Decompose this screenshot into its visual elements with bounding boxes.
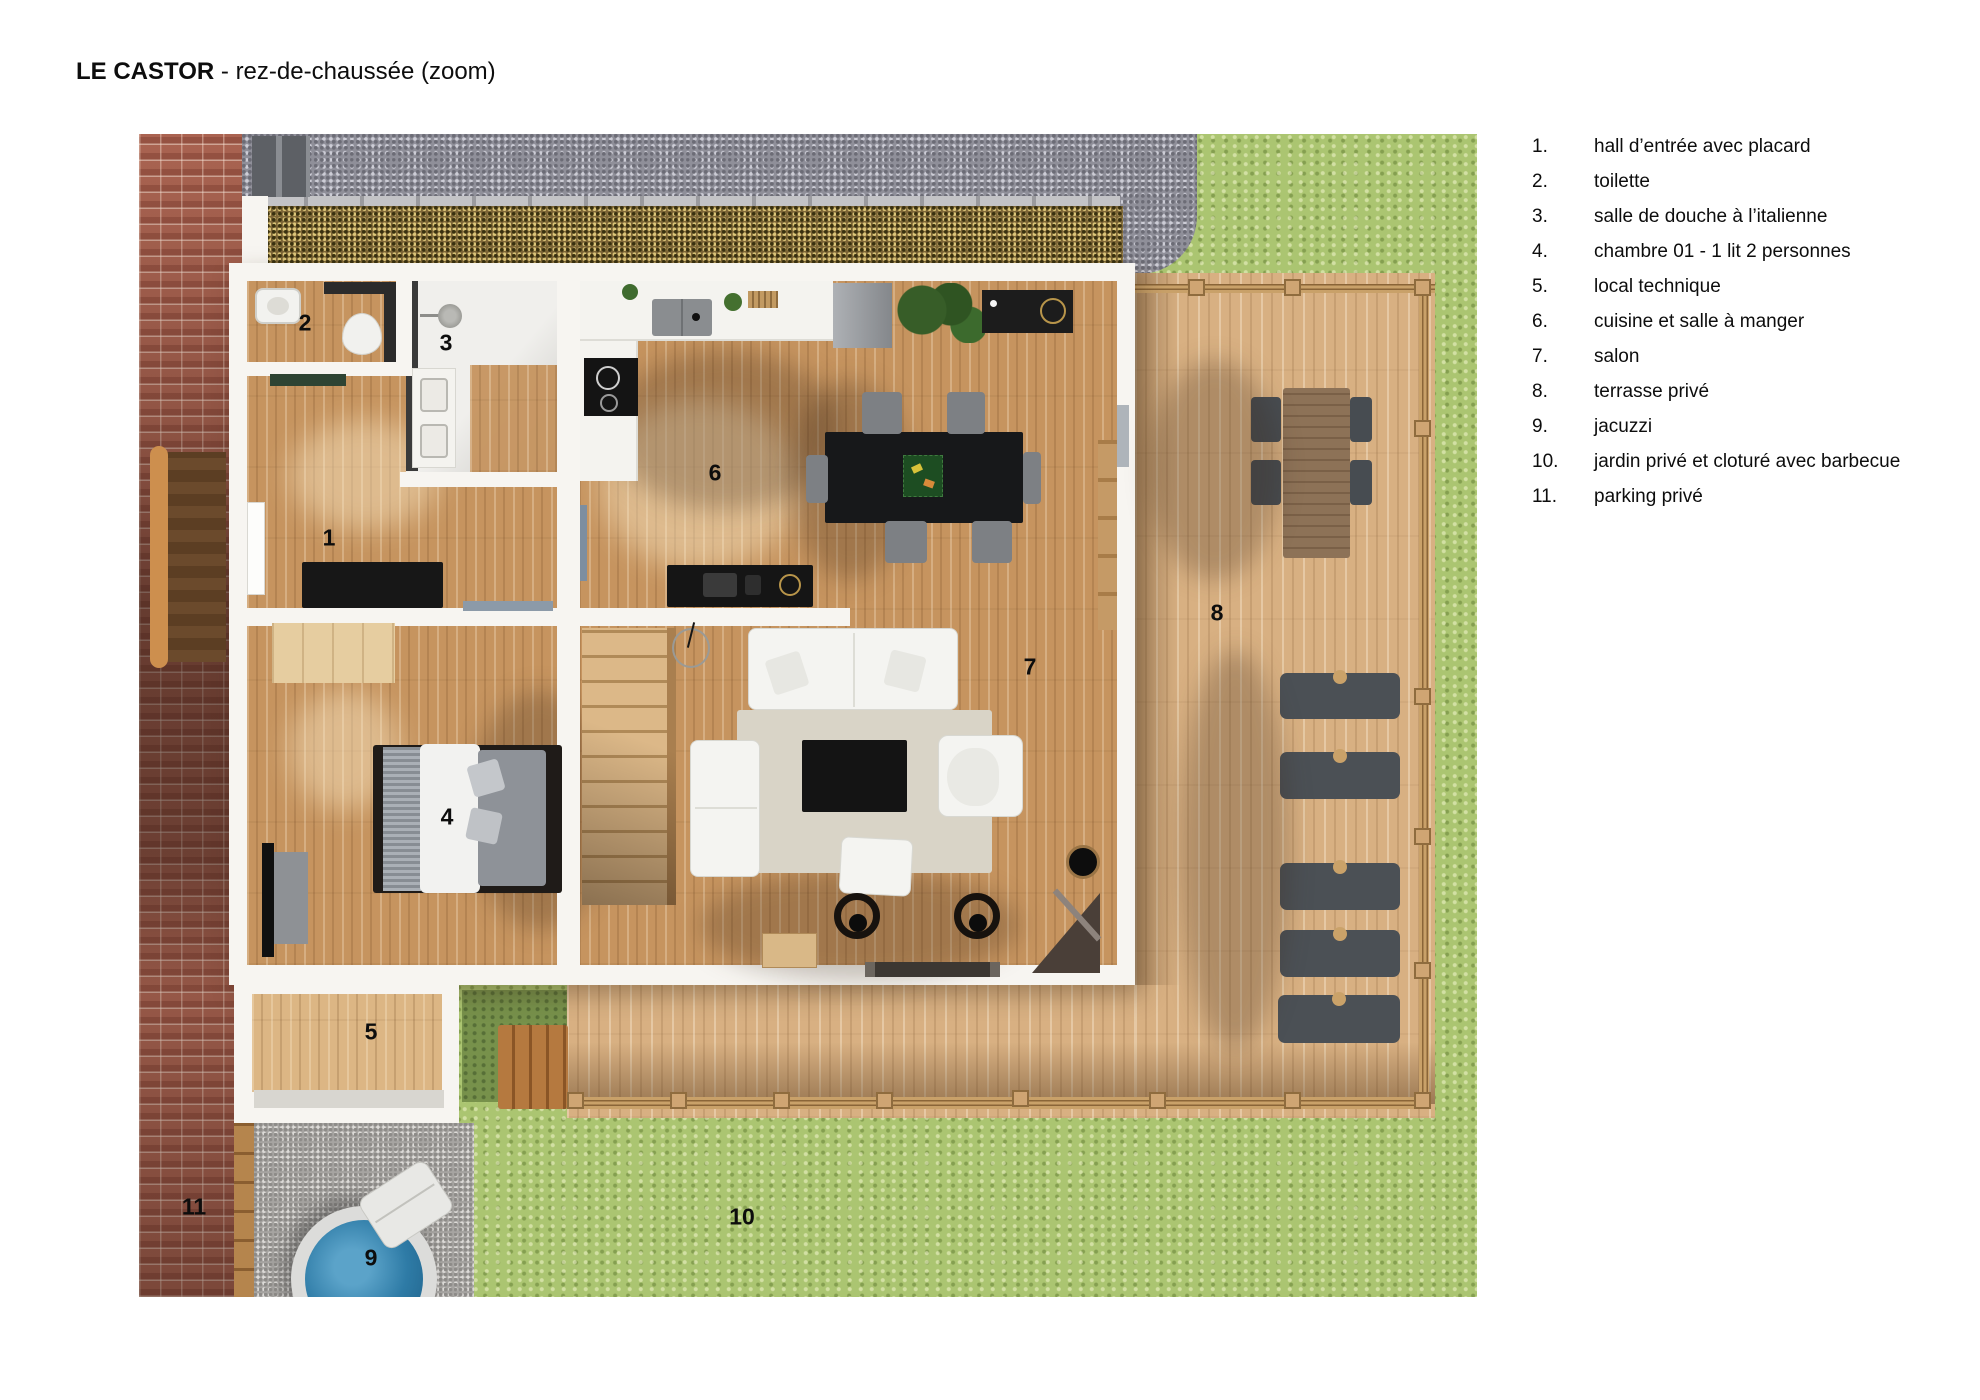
outdoor-chair (1350, 397, 1372, 442)
legend-item: 3.salle de douche à l’italienne (1532, 206, 1962, 241)
railing-post (1414, 420, 1431, 437)
legend-item: 5.local technique (1532, 276, 1962, 311)
room-marker-terrasse: 8 (1211, 602, 1224, 625)
hanging-chair (834, 893, 880, 939)
curb-return (242, 196, 268, 264)
dining-chair (806, 455, 828, 503)
page-title-rest: - rez-de-chaussée (zoom) (214, 58, 495, 85)
legend-item: 8.terrasse privé (1532, 381, 1962, 416)
washbasin (255, 288, 301, 324)
deck-edge-shadow (567, 1042, 1435, 1104)
legend-item-label: terrasse privé (1594, 381, 1709, 416)
dining-chair (972, 521, 1012, 563)
railing-post (1414, 688, 1431, 705)
page-title: LE CASTOR - rez-de-chaussée (zoom) (76, 58, 496, 86)
wood-platform (162, 452, 226, 662)
doormat (865, 962, 1000, 977)
railing-post (1414, 1092, 1431, 1109)
ottoman (839, 836, 914, 897)
page-title-brand: LE CASTOR (76, 58, 214, 85)
railing-post (1149, 1092, 1166, 1109)
legend-item-label: chambre 01 - 1 lit 2 personnes (1594, 241, 1851, 276)
room-marker-parking: 11 (182, 1196, 206, 1219)
side-table (762, 933, 817, 968)
legend-item-label: jacuzzi (1594, 416, 1652, 451)
legend-item: 7.salon (1532, 346, 1962, 381)
entrance-door (247, 502, 265, 595)
legend-item-number: 10. (1532, 451, 1594, 486)
legend-item-number: 2. (1532, 171, 1594, 206)
tv-stand (274, 852, 308, 944)
legend-item-label: toilette (1594, 171, 1650, 206)
legend-item-number: 5. (1532, 276, 1594, 311)
legend-item-label: salle de douche à l’italienne (1594, 206, 1827, 241)
corridor-mat (463, 601, 553, 611)
hanging-chair (954, 893, 1000, 939)
toilet-wall-accent (384, 282, 396, 362)
legend-item: 4.chambre 01 - 1 lit 2 personnes (1532, 241, 1962, 276)
legend-item: 9.jacuzzi (1532, 416, 1962, 451)
legend-item: 10.jardin privé et cloturé avec barbecue (1532, 451, 1962, 486)
legend-item: 6.cuisine et salle à manger (1532, 311, 1962, 346)
round-decor (672, 628, 710, 668)
room-marker-toilette: 2 (299, 312, 312, 335)
kitchen-sink (652, 299, 712, 336)
radiator (580, 505, 587, 581)
entry-steps (252, 136, 310, 197)
toilet (342, 313, 382, 355)
room-marker-technique: 5 (365, 1021, 378, 1044)
bed-runner (383, 747, 421, 891)
garden-steps (498, 1025, 568, 1109)
interior-wall (400, 472, 580, 487)
cooktop (584, 358, 638, 416)
legend-item: 11.parking privé (1532, 486, 1962, 521)
railing-post (1284, 1092, 1301, 1109)
table-centerpiece (903, 455, 943, 497)
wood-strip (234, 1123, 254, 1297)
outdoor-dining-table (1283, 388, 1350, 558)
legend-item-number: 7. (1532, 346, 1594, 381)
room-marker-chambre: 4 (441, 806, 454, 829)
legend-item-number: 9. (1532, 416, 1594, 451)
railing-post (670, 1092, 687, 1109)
room-marker-jacuzzi: 9 (365, 1247, 378, 1270)
hedge-gravel-band (266, 206, 1123, 268)
sun-lounger (1278, 995, 1400, 1043)
legend-item: 2.toilette (1532, 171, 1962, 206)
outdoor-chair (1251, 397, 1281, 442)
legend-item-number: 1. (1532, 136, 1594, 171)
technical-room-floor (252, 994, 442, 1092)
wardrobe (272, 623, 395, 683)
dining-chair (1023, 452, 1041, 504)
shower-head (438, 304, 462, 328)
staircase-shadow (582, 628, 676, 905)
fridge (833, 283, 892, 348)
sun-lounger (1280, 752, 1400, 799)
shower-room-wood-part (470, 365, 557, 472)
outdoor-chair (1350, 460, 1372, 505)
railing-post (1188, 279, 1205, 296)
spice-rack (748, 291, 778, 308)
legend: 1.hall d’entrée avec placard 2.toilette … (1532, 136, 1962, 521)
jacuzzi-pad (254, 1123, 474, 1297)
legend-item-label: cuisine et salle à manger (1594, 311, 1804, 346)
coffee-table (802, 740, 907, 812)
brick-shadow-overlay (139, 134, 242, 1297)
tv-screen (262, 843, 274, 957)
sun-lounger (1280, 930, 1400, 977)
room-marker-cuisine: 6 (709, 462, 722, 485)
armchair (938, 735, 1023, 817)
technical-room-threshold (254, 1090, 444, 1108)
legend-item-label: parking privé (1594, 486, 1703, 521)
kitchen-island (667, 565, 813, 607)
railing-post (1414, 962, 1431, 979)
dining-chair (862, 392, 902, 434)
hall-sideboard (302, 562, 443, 608)
vanity-sink (420, 378, 448, 412)
dining-chair (947, 392, 985, 434)
wood-platform-rail (150, 446, 168, 668)
wall-sideboard (1098, 440, 1117, 630)
dining-chair (885, 521, 927, 563)
legend-item-number: 8. (1532, 381, 1594, 416)
plant-small (622, 284, 638, 300)
room-marker-jardin: 10 (729, 1206, 755, 1229)
railing-post (1414, 828, 1431, 845)
vanity-sink (420, 424, 448, 458)
room-marker-salon: 7 (1024, 656, 1037, 679)
page: { "title": { "brand": "LE CASTOR", "rest… (0, 0, 1980, 1400)
sun-lounger (1280, 673, 1400, 719)
legend-item-number: 6. (1532, 311, 1594, 346)
legend-item-label: hall d’entrée avec placard (1594, 136, 1811, 171)
kitchen-counter-black (982, 290, 1073, 333)
bed-pillow (465, 807, 503, 845)
hall-doormat (270, 374, 346, 386)
barbecue (1066, 845, 1100, 879)
railing-post (1012, 1090, 1029, 1107)
outdoor-chair (1251, 460, 1281, 505)
legend-item-label: jardin privé et cloturé avec barbecue (1594, 451, 1900, 486)
railing-post (876, 1092, 893, 1109)
legend-item: 1.hall d’entrée avec placard (1532, 136, 1962, 171)
legend-item-label: salon (1594, 346, 1639, 381)
legend-item-number: 4. (1532, 241, 1594, 276)
legend-item-number: 3. (1532, 206, 1594, 241)
plant-large (895, 283, 985, 343)
room-marker-hall: 1 (323, 527, 336, 550)
loveseat (690, 740, 760, 877)
plant-small (724, 293, 742, 311)
sofa (748, 628, 958, 710)
legend-item-label: local technique (1594, 276, 1721, 311)
legend-item-number: 11. (1532, 486, 1594, 521)
window (1117, 405, 1129, 467)
sun-lounger (1280, 863, 1400, 910)
railing-post (567, 1092, 584, 1109)
room-marker-douche: 3 (440, 332, 453, 355)
railing-post (1414, 279, 1431, 296)
railing-post (1284, 279, 1301, 296)
railing-post (773, 1092, 790, 1109)
house-shadow-on-deck (1135, 273, 1181, 985)
